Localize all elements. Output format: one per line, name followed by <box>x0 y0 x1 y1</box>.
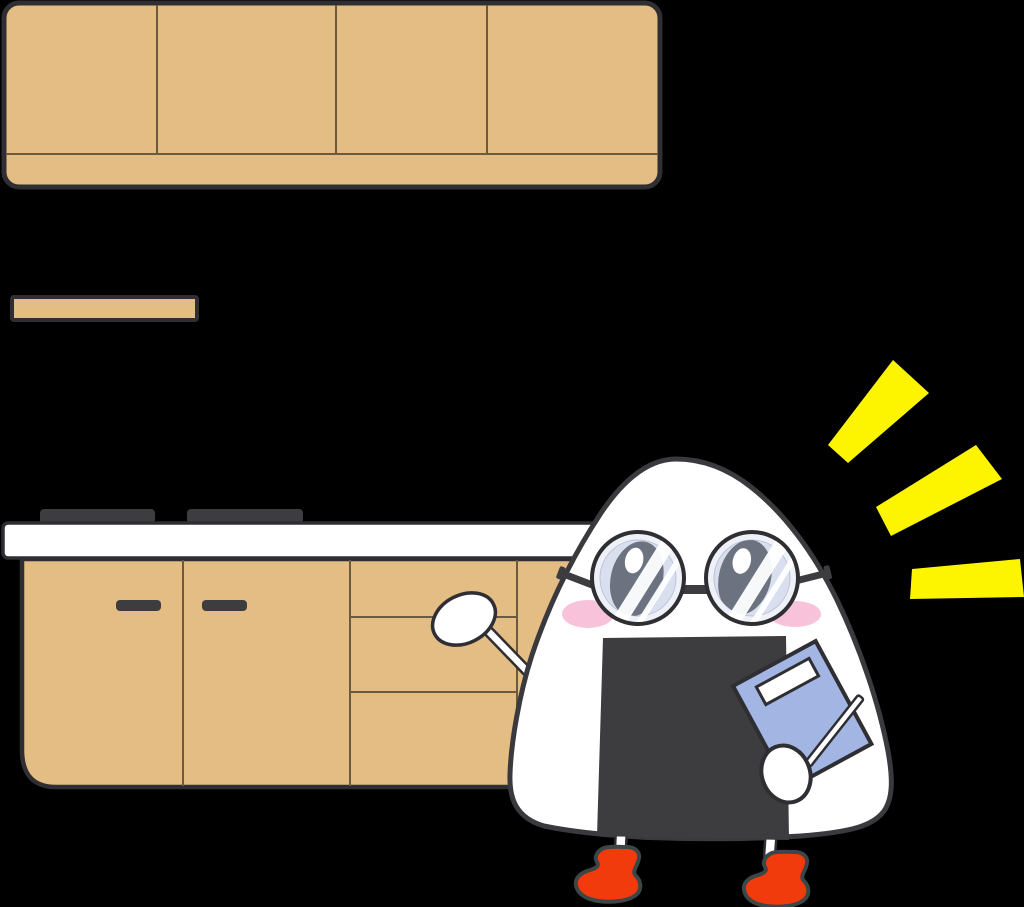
cabinet-handle-right <box>202 600 247 611</box>
countertop <box>3 523 640 558</box>
upper-cabinet-body <box>4 3 660 187</box>
illustration-canvas: Cartoon onigiri (rice ball) teacher with… <box>0 0 1024 907</box>
wall-shelf <box>12 297 197 320</box>
upper-wall-cabinet <box>4 3 660 187</box>
onigiri-kitchen-illustration: Cartoon onigiri (rice ball) teacher with… <box>0 0 1024 907</box>
cabinet-handle-left <box>116 600 161 611</box>
